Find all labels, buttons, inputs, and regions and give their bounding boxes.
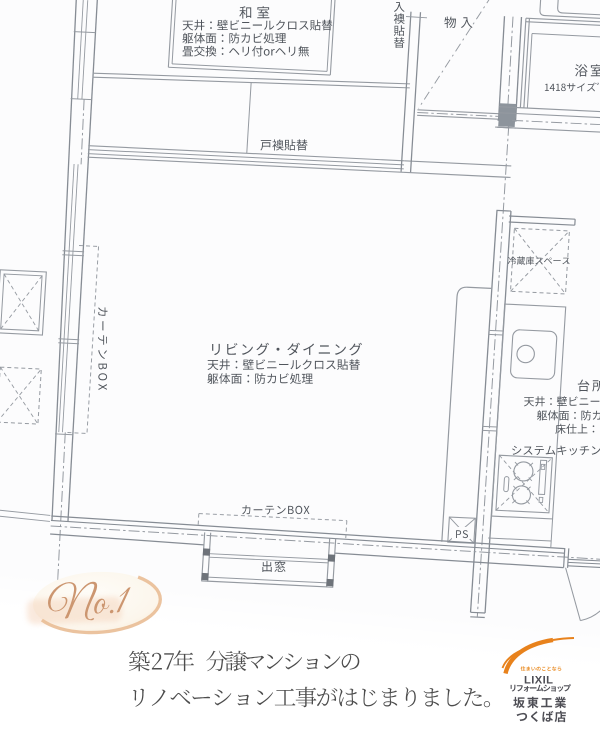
svg-text:LIXIL: LIXIL [524, 675, 553, 687]
